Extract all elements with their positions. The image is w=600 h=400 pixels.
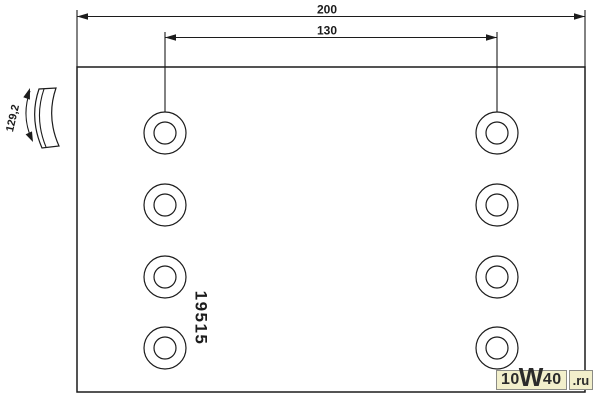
rivet-hole-outer — [144, 184, 186, 226]
rivet-hole-outer — [476, 184, 518, 226]
part-number: 19515 — [192, 291, 211, 346]
dimension-overall-200-label: 200 — [317, 3, 337, 17]
rivet-hole-outer — [144, 112, 186, 154]
watermark-tld: .ru — [569, 370, 594, 390]
watermark-logo-big-w: W — [519, 370, 544, 384]
side-profile-band — [35, 88, 59, 148]
dimension-holes-130-label: 130 — [317, 24, 337, 38]
watermark-logo-prefix: 10 — [501, 371, 520, 389]
arc-dimension-arrow-bottom — [26, 131, 33, 142]
dimension-overall-200: 200 — [77, 3, 585, 20]
arc-dimension-arrow-top — [23, 88, 30, 100]
watermark-logo-suffix: 40 — [543, 371, 562, 389]
drawing-svg: 200130129,219515 — [0, 0, 600, 400]
dimension-holes-130: 130 — [165, 24, 497, 41]
side-profile: 129,2 — [4, 88, 59, 148]
watermark: 10W40 .ru — [496, 370, 593, 390]
rivet-hole-outer — [476, 112, 518, 154]
drawing-canvas: 200130129,219515 10W40 .ru — [0, 0, 600, 400]
rivet-hole-outer — [476, 256, 518, 298]
arc-length-label: 129,2 — [4, 104, 22, 134]
rivet-hole-outer — [144, 327, 186, 369]
part-number-label: 19515 — [192, 291, 211, 346]
rivet-hole-outer — [476, 327, 518, 369]
rivet-hole-outer — [144, 256, 186, 298]
watermark-logo: 10W40 — [496, 370, 567, 390]
